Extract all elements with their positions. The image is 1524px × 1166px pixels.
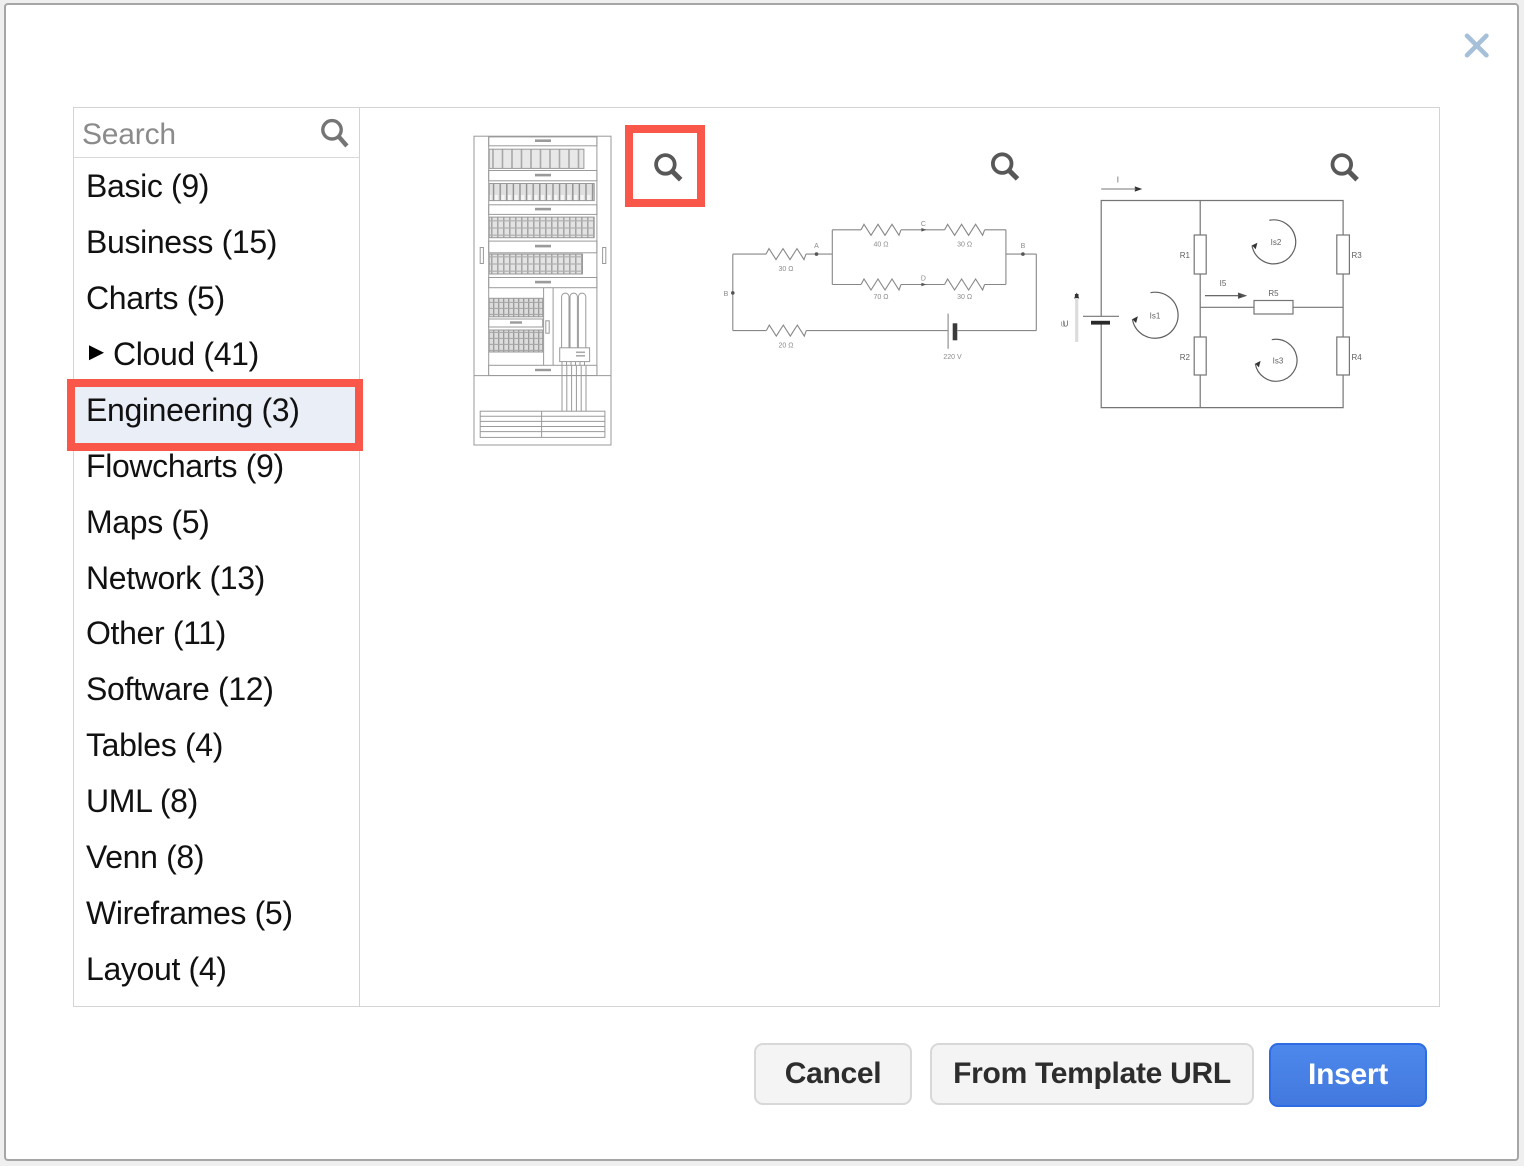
svg-text:A: A <box>814 243 819 250</box>
svg-text:Is1: Is1 <box>1150 312 1161 321</box>
svg-text:30 Ω: 30 Ω <box>957 242 972 249</box>
svg-text:R1: R1 <box>1180 251 1191 260</box>
svg-text:R5: R5 <box>1268 289 1279 298</box>
svg-text:40 Ω: 40 Ω <box>874 242 889 249</box>
svg-text:B: B <box>724 291 729 298</box>
svg-text:B: B <box>1021 243 1026 250</box>
svg-text:U: U <box>1063 320 1069 329</box>
svg-text:220 V: 220 V <box>943 354 962 361</box>
svg-text:R2: R2 <box>1180 353 1191 362</box>
svg-text:D: D <box>921 276 926 283</box>
svg-text:R3: R3 <box>1352 251 1363 260</box>
svg-text:70 Ω: 70 Ω <box>874 294 889 301</box>
svg-text:20 Ω: 20 Ω <box>779 343 794 350</box>
svg-text:30 Ω: 30 Ω <box>779 266 794 273</box>
svg-text:Is3: Is3 <box>1273 357 1284 366</box>
svg-text:I: I <box>1117 176 1119 185</box>
svg-text:R4: R4 <box>1352 353 1363 362</box>
svg-text:30 Ω: 30 Ω <box>957 294 972 301</box>
svg-text:C: C <box>921 221 926 228</box>
svg-text:Is2: Is2 <box>1271 238 1282 247</box>
svg-text:I5: I5 <box>1220 279 1227 288</box>
